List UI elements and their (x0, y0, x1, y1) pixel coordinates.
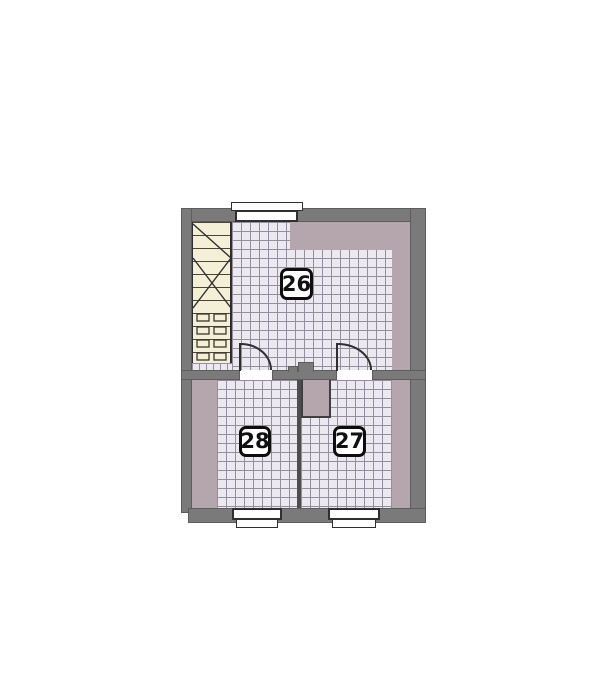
attic-zone-right-lower (392, 380, 410, 508)
room-label-26: 26 (280, 268, 313, 300)
floor-plan: 26 28 27 (0, 0, 614, 700)
room-label-27: 27 (333, 426, 366, 457)
wall-partition-27-28 (297, 380, 301, 508)
stair-landing-tiles (192, 363, 232, 370)
attic-zone-left-lower (192, 380, 217, 508)
staircase (192, 222, 232, 363)
room-26-number: 26 (282, 274, 311, 295)
stair-break-lines (192, 222, 232, 363)
room-27-number: 27 (335, 431, 364, 452)
wall-exterior-top (181, 208, 426, 222)
chimney-bump-step1 (288, 366, 298, 372)
wall-exterior-left (181, 208, 192, 513)
wall-divider-left-segment (181, 370, 240, 380)
floor-plan-canvas: 26 28 27 (0, 0, 614, 700)
chimney-block (301, 380, 331, 418)
attic-zone-right-upper (392, 250, 410, 370)
chimney-bump-step2 (298, 362, 314, 372)
window-bottom-left-sill (236, 519, 278, 528)
wall-exterior-right (410, 208, 426, 523)
window-bottom-right-sill (332, 519, 376, 528)
wall-exterior-bottom (188, 508, 426, 523)
room-28-number: 28 (240, 431, 269, 452)
stair-tread-marks (197, 314, 226, 360)
wall-divider-right-segment (372, 370, 426, 380)
attic-zone-top-band (290, 222, 410, 250)
room-label-28: 28 (239, 426, 271, 457)
window-top-frame (235, 210, 298, 222)
